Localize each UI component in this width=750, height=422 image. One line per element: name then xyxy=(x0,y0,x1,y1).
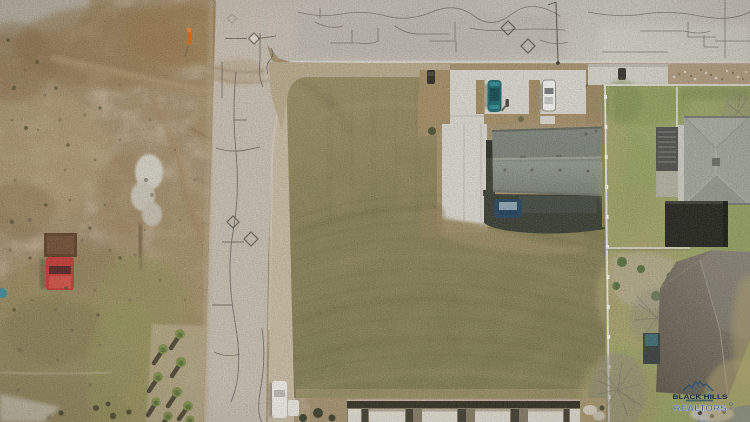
svg-text:REALTORS: REALTORS xyxy=(674,403,727,413)
